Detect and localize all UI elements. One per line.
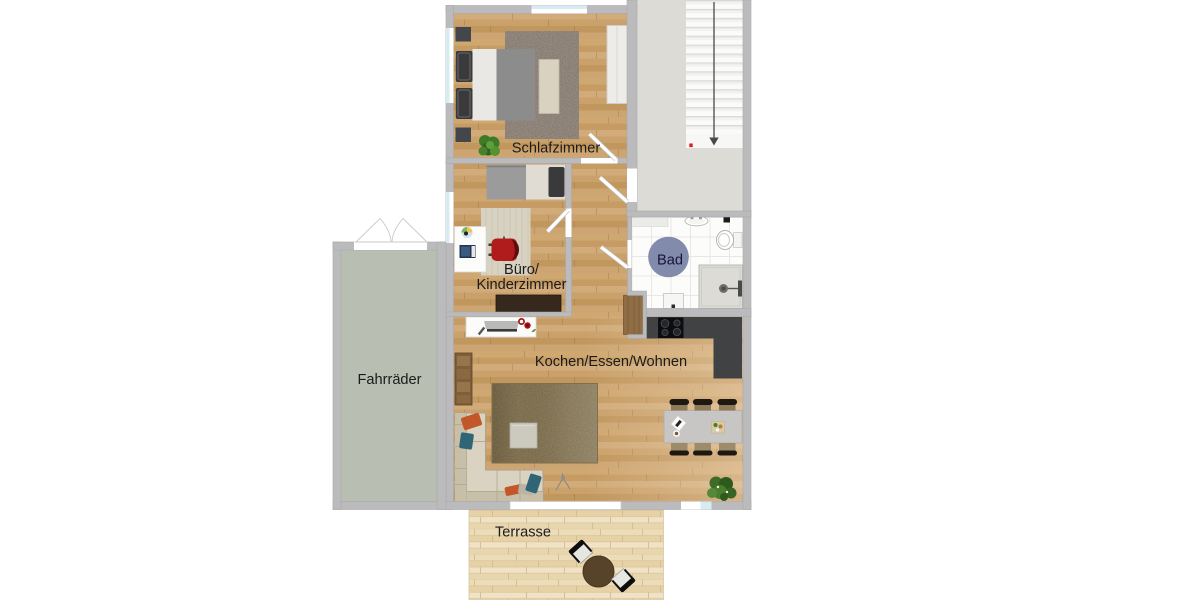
svg-text:Fahrräder: Fahrräder (357, 372, 421, 388)
svg-text:Bad: Bad (657, 253, 683, 269)
svg-text:Schlafzimmer: Schlafzimmer (512, 141, 601, 157)
svg-text:Kochen/Essen/Wohnen: Kochen/Essen/Wohnen (535, 354, 687, 370)
svg-text:Kinderzimmer: Kinderzimmer (476, 277, 566, 293)
svg-text:Büro/: Büro/ (504, 262, 540, 278)
svg-text:Terrasse: Terrasse (495, 525, 551, 541)
